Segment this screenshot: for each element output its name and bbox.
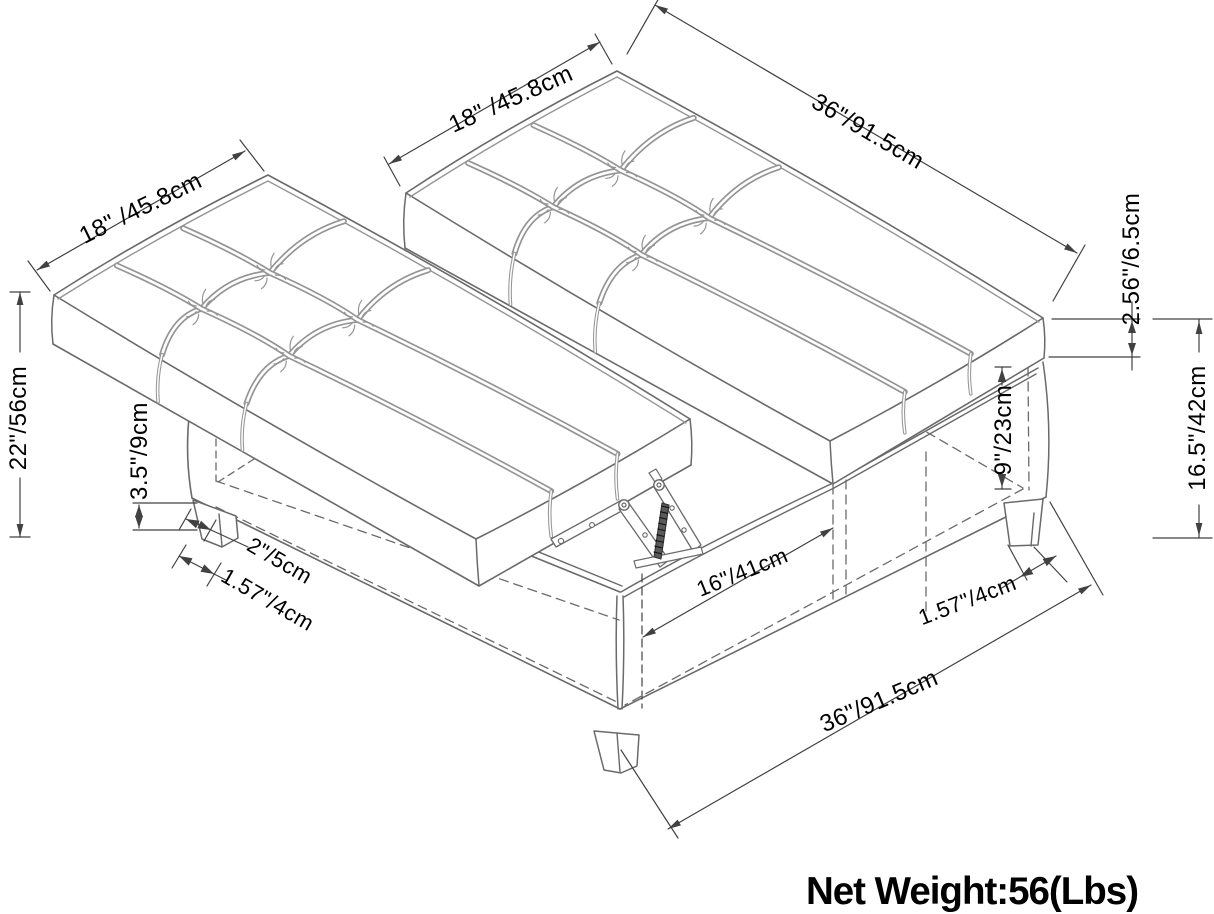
svg-text:22"/56cm: 22"/56cm xyxy=(5,366,32,471)
svg-text:2.56"/6.5cm: 2.56"/6.5cm xyxy=(1118,193,1145,326)
svg-text:9"/23cm: 9"/23cm xyxy=(990,385,1017,476)
svg-text:3.5"/9cm: 3.5"/9cm xyxy=(126,402,153,500)
svg-text:16.5"/42cm: 16.5"/42cm xyxy=(1184,365,1211,491)
svg-text:Net Weight:56(Lbs): Net Weight:56(Lbs) xyxy=(806,870,1138,913)
